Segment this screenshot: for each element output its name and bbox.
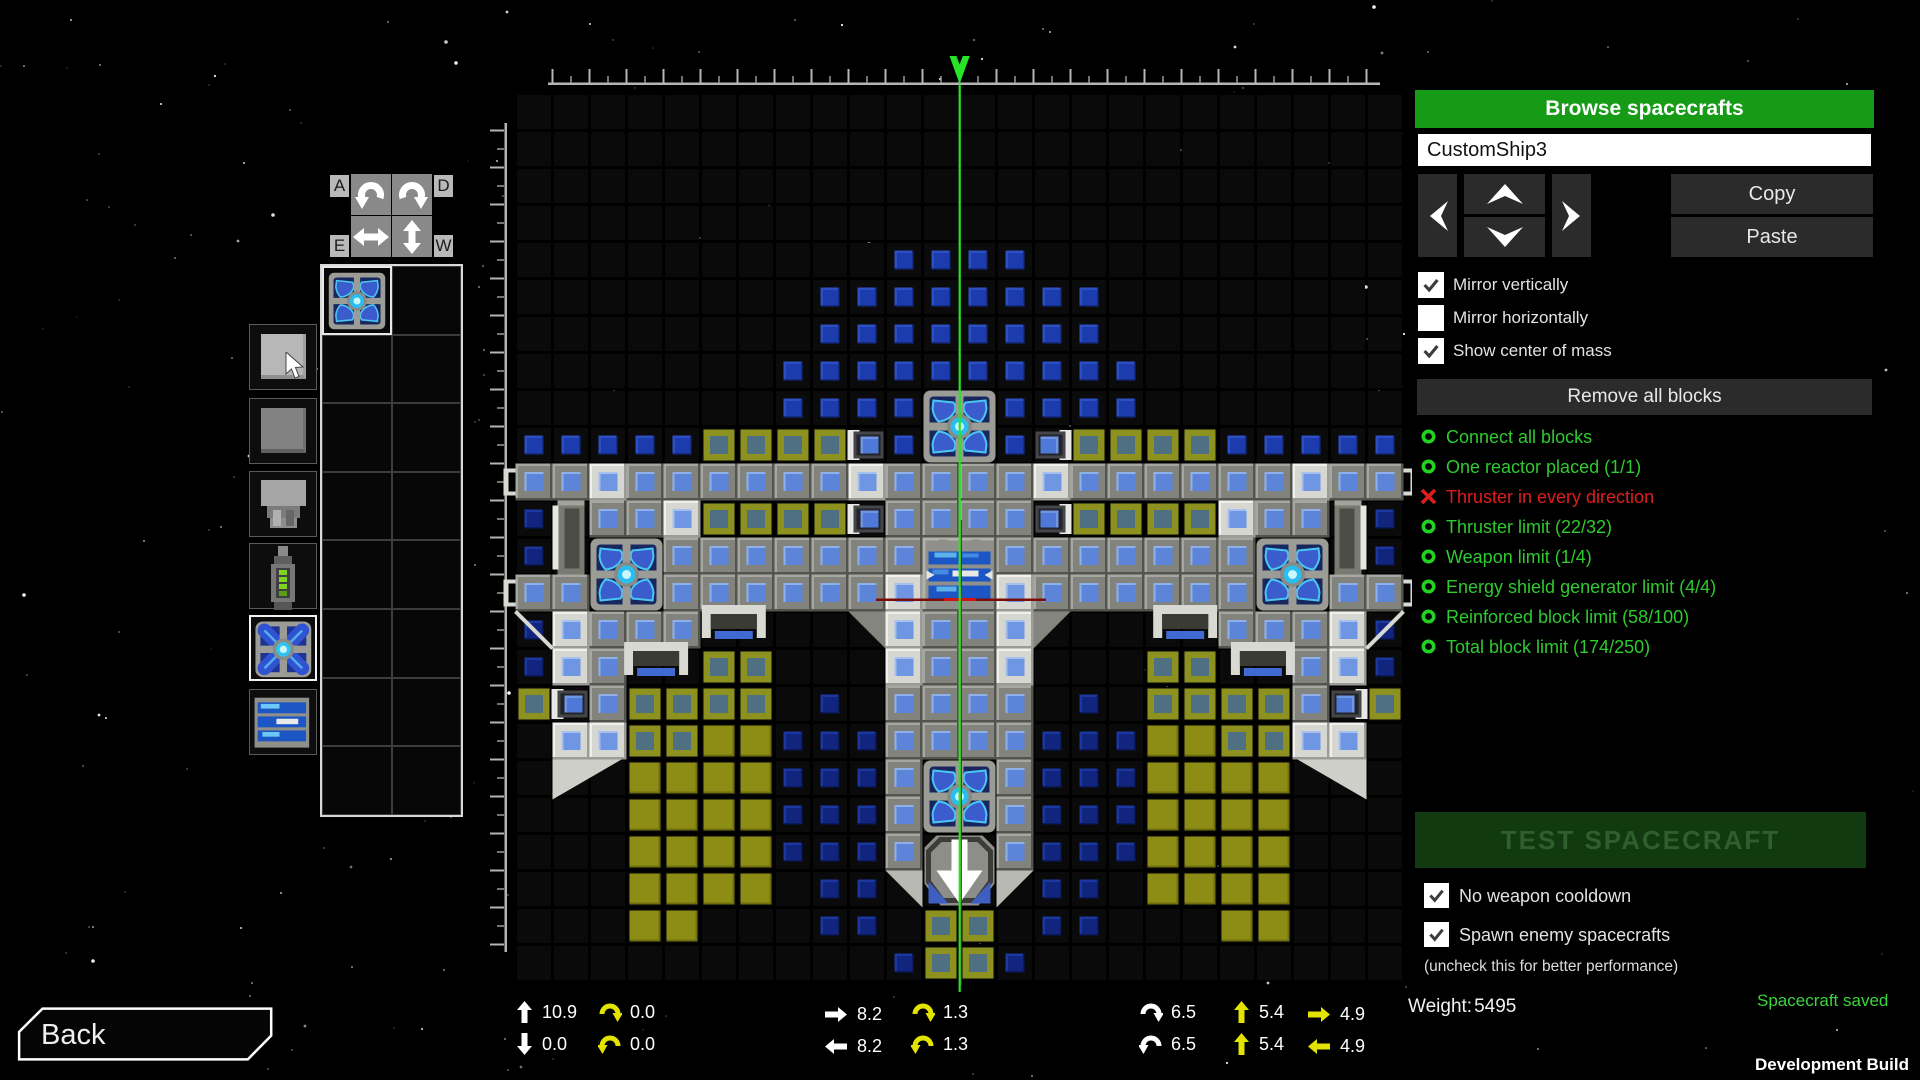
svg-text:Back: Back [41, 1019, 106, 1051]
